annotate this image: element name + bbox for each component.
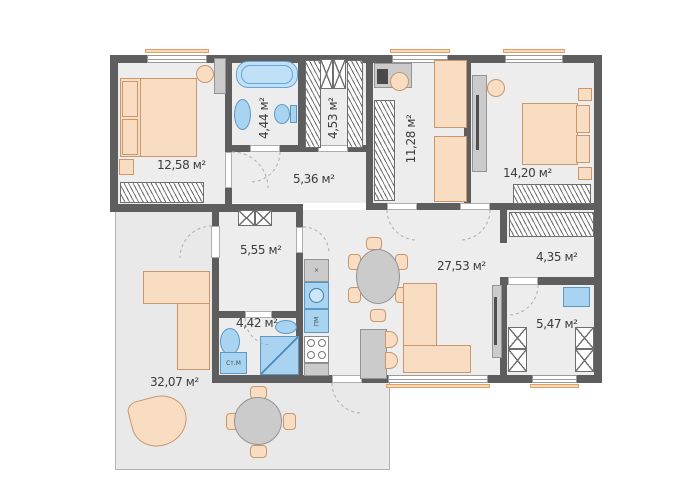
pillow <box>576 135 590 163</box>
wall-bedroom-left-right <box>225 55 232 212</box>
shower <box>260 336 299 375</box>
bathtub-inner <box>241 65 293 84</box>
wardrobe-hatch <box>347 60 363 148</box>
washing-machine <box>563 287 590 307</box>
area-label-living: 27,53 м² <box>437 259 486 273</box>
area-label-wardrobe-right: 4,35 м² <box>536 250 578 264</box>
window-bedroom-left <box>147 55 207 63</box>
area-label-hall: 5,55 м² <box>240 243 282 257</box>
toilet <box>274 104 290 124</box>
wall-bedroom-left-bottom <box>110 204 220 212</box>
area-label-terrace: 32,07 м² <box>150 375 199 389</box>
dining-table <box>356 249 400 304</box>
desk-chair <box>390 72 409 91</box>
wardrobe-hatch <box>120 182 204 203</box>
dining-chair <box>370 309 386 322</box>
wall-left <box>110 55 118 212</box>
nightstand <box>578 88 592 101</box>
window-sill <box>503 49 565 53</box>
hall-closet <box>238 210 255 226</box>
kitchen-sink-bowl <box>309 288 324 303</box>
shelf-unit <box>320 59 333 89</box>
terrace-chair <box>283 413 296 430</box>
hall-closet <box>255 210 272 226</box>
tv-screen <box>476 95 479 150</box>
kitchen-cabinet-hood: × <box>304 259 329 282</box>
pillow <box>122 119 138 155</box>
sofa-chaise <box>403 345 471 373</box>
area-label-utility: 5,47 м² <box>536 317 578 331</box>
area-label-bathroom-small: 4,42 м² <box>236 316 278 330</box>
bed-single <box>434 136 467 202</box>
burner <box>307 351 315 359</box>
bed-single <box>434 60 467 128</box>
tv-screen <box>494 297 497 345</box>
wall-dressing-kids <box>366 55 373 210</box>
sink <box>234 99 251 130</box>
dishwasher: ПМ <box>304 309 329 333</box>
utility-cabinet <box>508 327 527 349</box>
burner <box>318 351 326 359</box>
area-label-bedroom-right: 14,20 м² <box>503 166 552 180</box>
chair <box>487 79 505 97</box>
window-sill <box>145 49 209 53</box>
door-utility <box>508 277 538 285</box>
door-dressing <box>318 145 348 152</box>
area-label-corridor: 5,36 м² <box>293 172 335 186</box>
window-sill <box>386 384 490 388</box>
area-label-bedroom-left: 12,58 м² <box>157 158 206 172</box>
kitchen-counter <box>304 363 329 376</box>
door-bedroom-left <box>225 152 232 188</box>
room-hall <box>219 212 296 311</box>
chair <box>196 65 214 83</box>
window-sill <box>390 49 450 53</box>
washing-machine: Ст.М <box>220 352 247 374</box>
utility-cabinet <box>575 349 594 372</box>
door-hall-living <box>296 227 303 253</box>
window-bedroom-right <box>505 55 563 63</box>
window-sill <box>530 384 579 388</box>
opening-wardrobe-right <box>500 243 507 277</box>
wardrobe-hatch <box>513 184 591 204</box>
toilet-tank <box>290 105 297 123</box>
area-label-dressing: 4,53 м² <box>326 99 340 139</box>
wall-bath-dressing <box>298 55 305 152</box>
wardrobe-hatch <box>509 212 594 237</box>
area-label-bathroom-main: 4,44 м² <box>257 99 271 139</box>
washing-machine-label: Ст.М <box>226 360 241 367</box>
outdoor-sofa <box>143 271 210 304</box>
bed-double <box>522 103 578 165</box>
door-bathroom-main <box>250 145 280 152</box>
hood-symbol: × <box>314 267 319 274</box>
desk-monitor <box>377 69 388 84</box>
dining-chair <box>366 237 382 250</box>
window-living <box>388 375 488 383</box>
door-entry <box>211 226 220 258</box>
nightstand <box>578 167 592 180</box>
pillow <box>576 105 590 133</box>
window-utility <box>532 375 577 383</box>
dresser <box>214 58 226 94</box>
terrace-chair <box>250 445 267 458</box>
wardrobe-hatch <box>374 100 395 201</box>
toilet <box>275 320 297 334</box>
shelf-unit <box>333 59 346 89</box>
bed-seam <box>140 79 141 156</box>
sink <box>220 328 240 355</box>
side-table <box>360 329 387 379</box>
burner <box>307 339 315 347</box>
terrace-table <box>234 397 282 445</box>
floor-plan: Ст.М × ПМ <box>0 0 682 502</box>
door-kids <box>387 203 417 210</box>
pillow <box>122 81 138 117</box>
utility-cabinet <box>508 349 527 372</box>
door-terrace <box>332 375 362 383</box>
bedside-bench <box>119 159 134 175</box>
wall-right <box>594 55 602 383</box>
tv-unit <box>472 75 487 172</box>
area-label-kids: 11,28 м² <box>404 114 418 164</box>
dishwasher-label: ПМ <box>313 316 320 326</box>
wardrobe-hatch <box>305 60 321 148</box>
burner <box>318 339 326 347</box>
door-bedroom-right <box>460 203 490 210</box>
